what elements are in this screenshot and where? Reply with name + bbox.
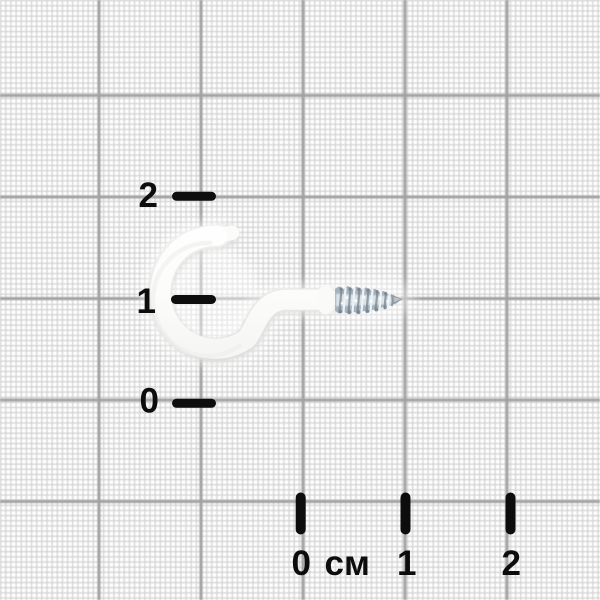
svg-text:2: 2 — [139, 176, 158, 215]
svg-text:1: 1 — [137, 282, 156, 321]
svg-text:0: 0 — [140, 381, 159, 420]
svg-text:1: 1 — [397, 544, 416, 583]
svg-text:2: 2 — [502, 544, 521, 583]
svg-text:см: см — [325, 544, 370, 583]
svg-text:0: 0 — [292, 544, 311, 583]
